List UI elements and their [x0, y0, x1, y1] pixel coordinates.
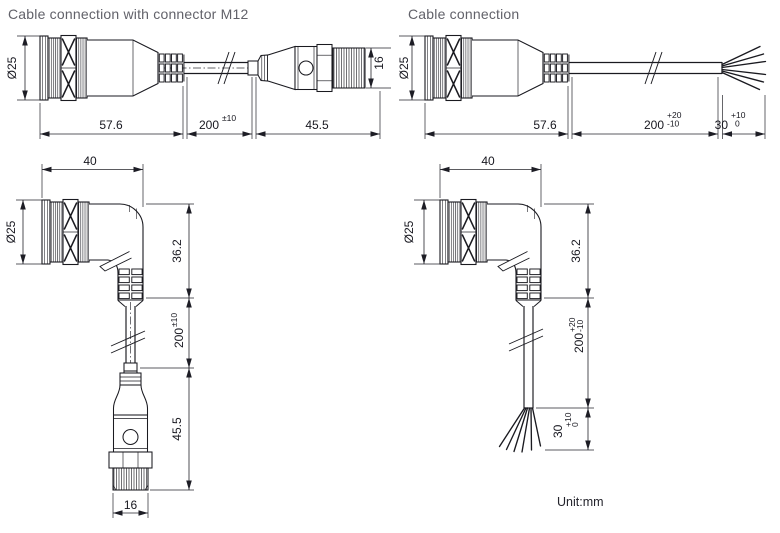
diagram-angled-wire: 40 Ø25 36.2 200 +20 -10 30 +10 0 [402, 154, 594, 452]
dim-cable-length-label: 200 [644, 118, 664, 132]
dimensional-drawing: Cable connection with connector M12 Ø25 … [0, 0, 780, 533]
dim-cable-length-label: 200 [199, 118, 219, 132]
dim-body-width-label: 40 [481, 154, 495, 168]
dim-body-width-label: 40 [83, 154, 97, 168]
dim-cable-length-label: 200 [172, 328, 186, 348]
dim-diameter-label: Ø25 [397, 56, 411, 79]
round-connector-angled [42, 200, 143, 307]
round-connector-angled [440, 200, 541, 307]
dimensions: 40 Ø25 36.2 200 +20 -10 30 +10 0 [402, 154, 594, 450]
cable-break-mark [645, 52, 656, 84]
stripped-wires [500, 408, 541, 452]
stripped-wires [722, 47, 766, 90]
dim-strip-tol-lower: 0 [735, 119, 740, 129]
dim-strip-length-label: 30 [715, 118, 729, 132]
diagram-title: Cable connection [408, 6, 519, 22]
technical-drawing-page: Cable connection with connector M12 Ø25 … [0, 0, 780, 533]
diagram-angled-m12: 40 Ø25 36.2 200 ±10 45.5 16 [4, 154, 194, 518]
diagram-title: Cable connection with connector M12 [8, 6, 248, 22]
dim-plug-length-label: 45.5 [170, 417, 184, 441]
dim-diameter-label: Ø25 [5, 56, 19, 79]
dim-body-length-label: 57.6 [99, 118, 123, 132]
diagram-straight-wire: Cable connection Ø25 [397, 6, 766, 139]
dim-body-length-label: 57.6 [533, 118, 557, 132]
dim-cable-tol-lower: -10 [575, 319, 585, 332]
diagram-straight-m12: Cable connection with connector M12 Ø25 … [5, 6, 391, 139]
dim-strip-tol-lower: 0 [570, 422, 580, 427]
dim-diameter-label: Ø25 [402, 220, 416, 243]
dim-cable-tolerance-label: ±10 [169, 313, 179, 327]
dim-body-height-label: 36.2 [569, 239, 583, 263]
cable-break-mark [111, 331, 145, 346]
unit-note: Unit:mm [557, 495, 604, 509]
dim-diameter-label: Ø25 [4, 220, 18, 243]
dim-cable-tol-lower: -10 [667, 119, 680, 129]
round-connector [425, 36, 569, 101]
round-connector [40, 36, 184, 101]
dim-plug-diameter-label: 16 [372, 56, 386, 70]
cable-break-mark [509, 329, 543, 344]
dim-cable-tolerance-label: ±10 [222, 113, 236, 123]
dim-plug-diameter-label: 16 [124, 498, 138, 512]
dim-plug-length-label: 45.5 [305, 118, 329, 132]
m12-plug [109, 363, 152, 490]
dim-body-height-label: 36.2 [170, 239, 184, 263]
dim-cable-length-label: 200 [572, 333, 586, 353]
m12-plug [248, 45, 365, 92]
